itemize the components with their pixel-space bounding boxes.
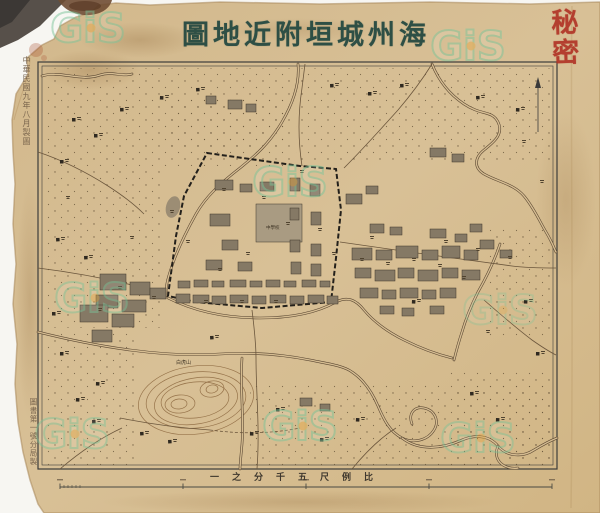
building-block — [320, 281, 330, 287]
label-mark — [146, 433, 149, 434]
hamlet-dot — [56, 238, 60, 242]
label-mark — [463, 278, 466, 279]
scale-bar-numeral-mark — [426, 479, 432, 480]
gis-watermark — [34, 412, 109, 458]
label-mark — [102, 383, 105, 384]
label-mark — [508, 256, 512, 257]
building-block — [442, 268, 458, 278]
label-mark — [360, 258, 364, 259]
building-block — [422, 290, 436, 299]
label-mark — [476, 248, 480, 249]
label-mark — [205, 302, 208, 303]
hamlet-dot — [356, 418, 360, 422]
scanned-map-page: GiS 白虎山 中學校 — [0, 0, 600, 513]
building-block — [302, 280, 316, 287]
building-block — [440, 288, 456, 298]
label-mark — [99, 133, 103, 134]
hamlet-dot — [120, 108, 124, 112]
building-block — [194, 280, 208, 287]
hamlet-dot — [84, 256, 88, 260]
label-mark — [241, 302, 244, 303]
label-mark — [523, 142, 526, 143]
label-mark — [335, 83, 339, 84]
label-mark — [77, 117, 81, 118]
building-block — [396, 246, 418, 258]
hamlet-dot — [210, 336, 214, 340]
label-mark — [66, 353, 69, 354]
hamlet-dot — [168, 440, 172, 444]
building-block — [291, 262, 301, 274]
building-block — [308, 295, 324, 303]
building-block — [442, 246, 460, 258]
building-block — [311, 264, 321, 276]
hamlet-dot — [72, 118, 76, 122]
label-mark — [361, 417, 365, 418]
label-mark — [126, 109, 129, 110]
building-block — [370, 224, 384, 233]
building-block — [228, 100, 242, 109]
building-block — [418, 270, 438, 281]
scale-bar-numeral-mark — [180, 479, 186, 480]
building-block — [92, 330, 112, 342]
label-mark — [202, 89, 205, 90]
label-mark — [522, 140, 526, 141]
label-mark — [165, 95, 169, 96]
label-mark — [319, 230, 322, 231]
label-mark — [475, 391, 479, 392]
label-mark — [332, 252, 336, 253]
label-mark — [540, 180, 544, 181]
building-block — [290, 208, 299, 220]
label-mark — [173, 439, 177, 440]
label-mark — [386, 262, 390, 263]
label-mark — [405, 83, 409, 84]
stain — [16, 180, 44, 420]
building-block — [430, 229, 446, 238]
label-mark — [152, 296, 156, 297]
hamlet-dot — [368, 92, 372, 96]
stain — [100, 490, 500, 513]
label-mark — [387, 264, 390, 265]
label-mark — [125, 107, 129, 108]
label-mark — [255, 431, 259, 432]
building-block — [246, 104, 256, 112]
label-mark — [187, 242, 190, 243]
label-mark — [174, 441, 177, 442]
label-mark — [166, 97, 169, 98]
hamlet-dot — [94, 134, 98, 138]
building-block — [376, 250, 392, 260]
label-mark — [333, 254, 336, 255]
label-mark — [286, 222, 290, 223]
label-mark — [131, 238, 134, 239]
building-block — [327, 296, 338, 304]
gis-watermark — [440, 416, 515, 462]
label-mark — [417, 299, 421, 300]
building-block — [238, 262, 252, 271]
building-block — [150, 288, 166, 299]
red-stain-dot — [41, 55, 47, 61]
hamlet-dot — [196, 88, 200, 92]
label-mark — [130, 236, 134, 237]
building-block — [452, 154, 464, 162]
scale-bar-numeral-mark — [549, 479, 555, 480]
building-block — [284, 281, 296, 287]
label-mark — [522, 109, 525, 110]
hamlet-dot — [96, 382, 100, 386]
building-block — [464, 250, 478, 260]
building-block — [250, 281, 262, 287]
label-mark — [153, 298, 156, 299]
hamlet-dot — [536, 352, 540, 356]
label-mark — [373, 91, 377, 92]
label-mark — [216, 337, 219, 338]
building-block — [290, 296, 304, 304]
building-block — [240, 184, 252, 192]
label-mark — [61, 237, 65, 238]
building-block — [455, 234, 467, 242]
building-block — [176, 294, 190, 303]
label-mark — [438, 264, 442, 265]
label-mark — [477, 250, 480, 251]
building-block — [230, 280, 246, 287]
building-block — [480, 240, 494, 249]
label-mark — [240, 300, 244, 301]
label-mark — [541, 351, 545, 352]
building-block — [311, 212, 321, 225]
label-mark — [476, 393, 479, 394]
label-mark — [481, 95, 485, 96]
building-block — [193, 295, 209, 303]
label-mark — [65, 159, 69, 160]
gis-watermark — [262, 404, 337, 450]
label-mark — [218, 268, 222, 269]
building-block — [402, 308, 414, 316]
label-mark — [509, 258, 512, 259]
building-block — [290, 240, 300, 252]
gis-watermark — [430, 24, 505, 70]
stipple-patch — [296, 68, 552, 164]
scale-bar-numeral-mark — [57, 479, 63, 480]
stain — [220, 18, 380, 42]
gis-watermark — [54, 276, 129, 322]
building-block — [210, 214, 230, 226]
building-block — [366, 186, 378, 194]
building-block — [380, 306, 394, 314]
label-mark — [201, 87, 205, 88]
label-mark — [222, 188, 226, 189]
label-mark — [100, 135, 103, 136]
label-mark — [482, 97, 485, 98]
building-block — [390, 227, 402, 235]
label-mark — [171, 212, 174, 213]
label-mark — [204, 300, 208, 301]
school-label: 中學校 — [266, 224, 280, 231]
label-mark — [370, 236, 374, 237]
label-mark — [223, 190, 226, 191]
building-block — [346, 194, 362, 204]
building-block — [266, 280, 280, 287]
label-mark — [412, 258, 416, 259]
scale-bar-numeral-mark — [303, 479, 309, 480]
label-mark — [362, 419, 365, 420]
hamlet-dot — [60, 352, 64, 356]
label-mark — [521, 107, 525, 108]
label-mark — [82, 399, 85, 400]
hamlet-dot — [250, 432, 254, 436]
label-mark — [145, 431, 149, 432]
building-block — [130, 282, 150, 295]
building-block — [311, 244, 321, 256]
building-block — [398, 268, 414, 278]
label-mark — [445, 242, 448, 243]
building-block — [470, 224, 482, 232]
label-mark — [81, 397, 85, 398]
building-block — [178, 281, 190, 288]
building-block — [382, 290, 396, 299]
building-block — [422, 250, 438, 260]
label-mark — [371, 238, 374, 239]
building-block — [375, 270, 395, 281]
building-block — [355, 268, 371, 278]
label-mark — [219, 270, 222, 271]
gis-watermark — [462, 288, 537, 334]
label-mark — [65, 351, 69, 352]
building-block — [212, 296, 226, 304]
label-mark — [170, 210, 174, 211]
building-block — [206, 96, 216, 104]
label-mark — [439, 266, 442, 267]
label-mark — [444, 240, 448, 241]
hamlet-dot — [330, 84, 334, 88]
label-mark — [62, 239, 65, 240]
label-mark — [542, 353, 545, 354]
label-mark — [186, 240, 190, 241]
gis-watermark — [252, 160, 327, 206]
hill-label: 白虎山 — [176, 359, 191, 366]
label-mark — [215, 335, 219, 336]
hamlet-dot — [476, 96, 480, 100]
label-mark — [275, 302, 278, 303]
building-block — [230, 295, 248, 303]
hamlet-dot — [516, 108, 520, 112]
label-mark — [462, 276, 466, 277]
building-block — [430, 148, 446, 157]
building-block — [222, 240, 238, 250]
label-mark — [374, 93, 377, 94]
label-mark — [246, 252, 250, 253]
label-mark — [406, 85, 409, 86]
hamlet-dot — [160, 96, 164, 100]
building-block — [212, 281, 224, 287]
building-block — [270, 295, 286, 303]
hamlet-dot — [140, 432, 144, 436]
hamlet-dot — [76, 398, 80, 402]
label-mark — [89, 255, 93, 256]
label-mark — [78, 119, 81, 120]
building-block — [430, 306, 444, 314]
label-mark — [66, 196, 70, 197]
label-mark — [256, 433, 259, 434]
label-mark — [318, 228, 322, 229]
label-mark — [361, 260, 364, 261]
building-block — [400, 288, 418, 298]
building-block — [360, 288, 378, 298]
label-mark — [418, 301, 421, 302]
label-mark — [66, 161, 69, 162]
red-stain — [29, 43, 43, 57]
label-mark — [90, 257, 93, 258]
hamlet-dot — [60, 160, 64, 164]
hamlet-dot — [412, 300, 416, 304]
label-mark — [274, 300, 278, 301]
gis-watermark — [50, 6, 125, 52]
label-mark — [287, 224, 290, 225]
label-mark — [336, 85, 339, 86]
hamlet-dot — [400, 84, 404, 88]
label-mark — [67, 198, 70, 199]
label-mark — [541, 182, 544, 183]
hamlet-dot — [470, 392, 474, 396]
building-block — [252, 296, 266, 304]
label-mark — [247, 254, 250, 255]
map-canvas: GiS 白虎山 中學校 — [0, 0, 600, 513]
label-mark — [413, 260, 416, 261]
label-mark — [101, 381, 105, 382]
